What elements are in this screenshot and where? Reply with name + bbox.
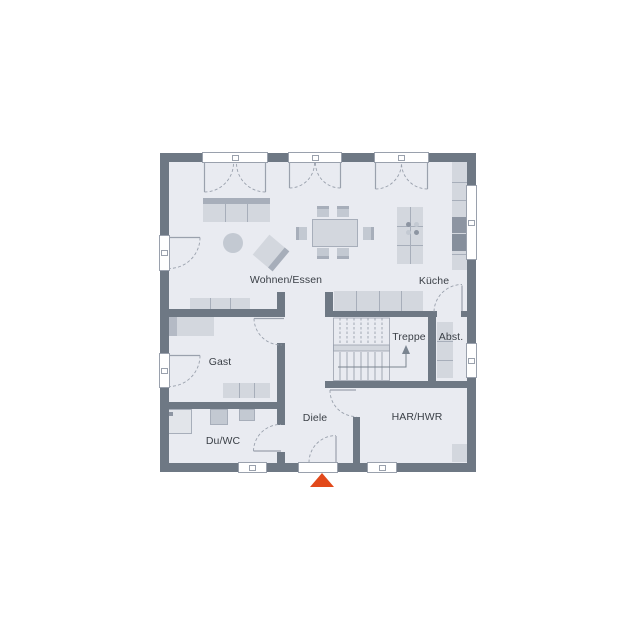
entrance-arrow-icon bbox=[310, 473, 334, 487]
guest-door-swing bbox=[254, 319, 284, 346]
room-label-hall: Diele bbox=[303, 412, 327, 424]
wc-door-swing bbox=[254, 424, 282, 451]
utility-door-swing bbox=[330, 390, 357, 417]
plan-linework bbox=[0, 0, 636, 636]
floor-plan: Wohnen/Essen Küche Treppe Abst. Gast Die… bbox=[0, 0, 636, 636]
room-label-guest: Gast bbox=[209, 356, 232, 368]
entrance-door-swing bbox=[309, 436, 336, 464]
stair-direction-arrow-icon bbox=[402, 345, 410, 354]
room-label-stairs: Treppe bbox=[392, 331, 425, 343]
terrace-door-swing bbox=[169, 238, 200, 387]
stair-landing-rail bbox=[334, 345, 390, 351]
staircase bbox=[334, 318, 411, 381]
room-label-wc: Du/WC bbox=[206, 435, 240, 447]
storage-door-swing bbox=[434, 285, 462, 312]
french-door-leaves bbox=[205, 163, 428, 192]
room-label-utility: HAR/HWR bbox=[392, 411, 443, 423]
room-label-kitchen: Küche bbox=[419, 275, 449, 287]
room-label-storage: Abst. bbox=[439, 331, 463, 343]
stair-walk-line bbox=[338, 352, 406, 367]
room-label-living: Wohnen/Essen bbox=[250, 274, 322, 286]
